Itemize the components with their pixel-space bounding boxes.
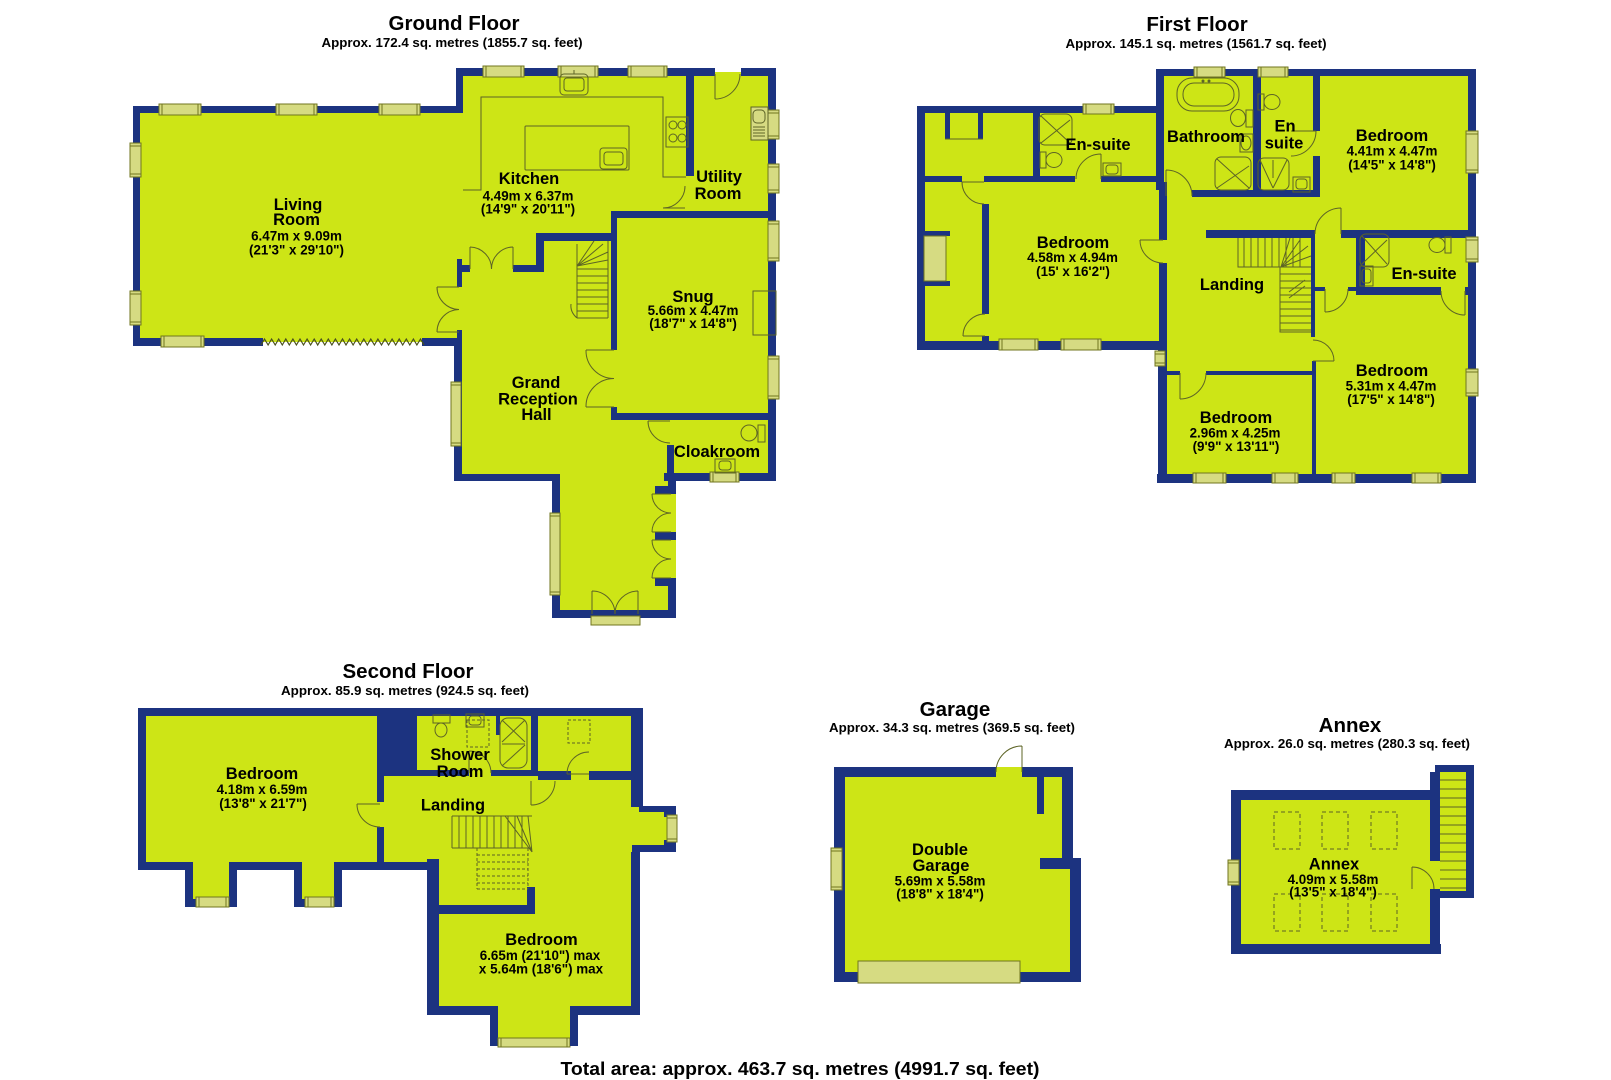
svg-text:Approx. 34.3 sq. metres (369.5: Approx. 34.3 sq. metres (369.5 sq. feet): [829, 720, 1075, 735]
svg-text:Room: Room: [437, 763, 484, 781]
svg-text:Cloakroom: Cloakroom: [674, 443, 760, 461]
svg-text:Bedroom: Bedroom: [505, 931, 577, 949]
svg-text:Garage: Garage: [913, 857, 970, 875]
svg-text:Approx. 26.0 sq. metres (280.3: Approx. 26.0 sq. metres (280.3 sq. feet): [1224, 736, 1470, 751]
svg-text:Garage: Garage: [920, 698, 991, 721]
svg-text:Landing: Landing: [1200, 276, 1264, 294]
svg-text:Approx. 172.4 sq. metres (1855: Approx. 172.4 sq. metres (1855.7 sq. fee…: [322, 35, 583, 50]
svg-text:(13'5" x 18'4"): (13'5" x 18'4"): [1289, 885, 1377, 900]
svg-text:Bedroom: Bedroom: [1356, 127, 1428, 145]
svg-text:Annex: Annex: [1319, 714, 1382, 737]
svg-text:4.41m x 4.47m: 4.41m x 4.47m: [1347, 144, 1438, 159]
svg-text:Second Floor: Second Floor: [343, 660, 474, 683]
svg-text:Shower: Shower: [430, 746, 490, 764]
svg-text:suite: suite: [1265, 135, 1304, 153]
svg-text:Bedroom: Bedroom: [1356, 362, 1428, 380]
svg-text:Grand: Grand: [512, 374, 561, 392]
svg-text:Landing: Landing: [421, 797, 485, 815]
svg-text:(21'3" x 29'10"): (21'3" x 29'10"): [249, 243, 344, 258]
svg-text:Room: Room: [273, 211, 320, 229]
svg-text:(18'7" x 14'8"): (18'7" x 14'8"): [649, 316, 737, 331]
svg-text:(13'8" x 21'7"): (13'8" x 21'7"): [219, 796, 307, 811]
svg-text:(17'5" x 14'8"): (17'5" x 14'8"): [1347, 392, 1435, 407]
svg-text:Total area: approx. 463.7 sq.: Total area: approx. 463.7 sq. metres (49…: [561, 1058, 1040, 1079]
svg-text:Bedroom: Bedroom: [1200, 409, 1272, 427]
svg-text:Room: Room: [695, 185, 742, 203]
svg-text:4.18m x 6.59m: 4.18m x 6.59m: [217, 782, 308, 797]
svg-text:6.47m x 9.09m: 6.47m x 9.09m: [251, 229, 342, 244]
svg-text:(15' x 16'2"): (15' x 16'2"): [1036, 264, 1110, 279]
svg-text:En-suite: En-suite: [1065, 136, 1130, 154]
svg-text:(18'8" x 18'4"): (18'8" x 18'4"): [896, 887, 984, 902]
svg-text:Approx. 85.9 sq. metres (924.5: Approx. 85.9 sq. metres (924.5 sq. feet): [281, 683, 529, 698]
svg-text:En-suite: En-suite: [1391, 265, 1456, 283]
svg-text:En: En: [1274, 118, 1295, 136]
svg-text:Annex: Annex: [1309, 856, 1360, 874]
svg-text:Bedroom: Bedroom: [226, 765, 298, 783]
svg-text:(9'9" x 13'11"): (9'9" x 13'11"): [1193, 439, 1280, 454]
svg-text:Bathroom: Bathroom: [1167, 128, 1245, 146]
svg-text:Ground Floor: Ground Floor: [389, 12, 520, 35]
svg-text:Kitchen: Kitchen: [499, 170, 560, 188]
svg-text:x 5.64m (18'6") max: x 5.64m (18'6") max: [479, 962, 604, 977]
svg-text:First Floor: First Floor: [1146, 13, 1247, 36]
svg-text:4.58m x 4.94m: 4.58m x 4.94m: [1027, 250, 1118, 265]
svg-text:Approx. 145.1 sq. metres (1561: Approx. 145.1 sq. metres (1561.7 sq. fee…: [1066, 36, 1327, 51]
svg-text:(14'5" x 14'8"): (14'5" x 14'8"): [1348, 158, 1436, 173]
svg-text:Utility: Utility: [696, 168, 743, 186]
svg-text:(14'9" x 20'11"): (14'9" x 20'11"): [481, 202, 575, 217]
svg-text:Hall: Hall: [521, 406, 551, 424]
